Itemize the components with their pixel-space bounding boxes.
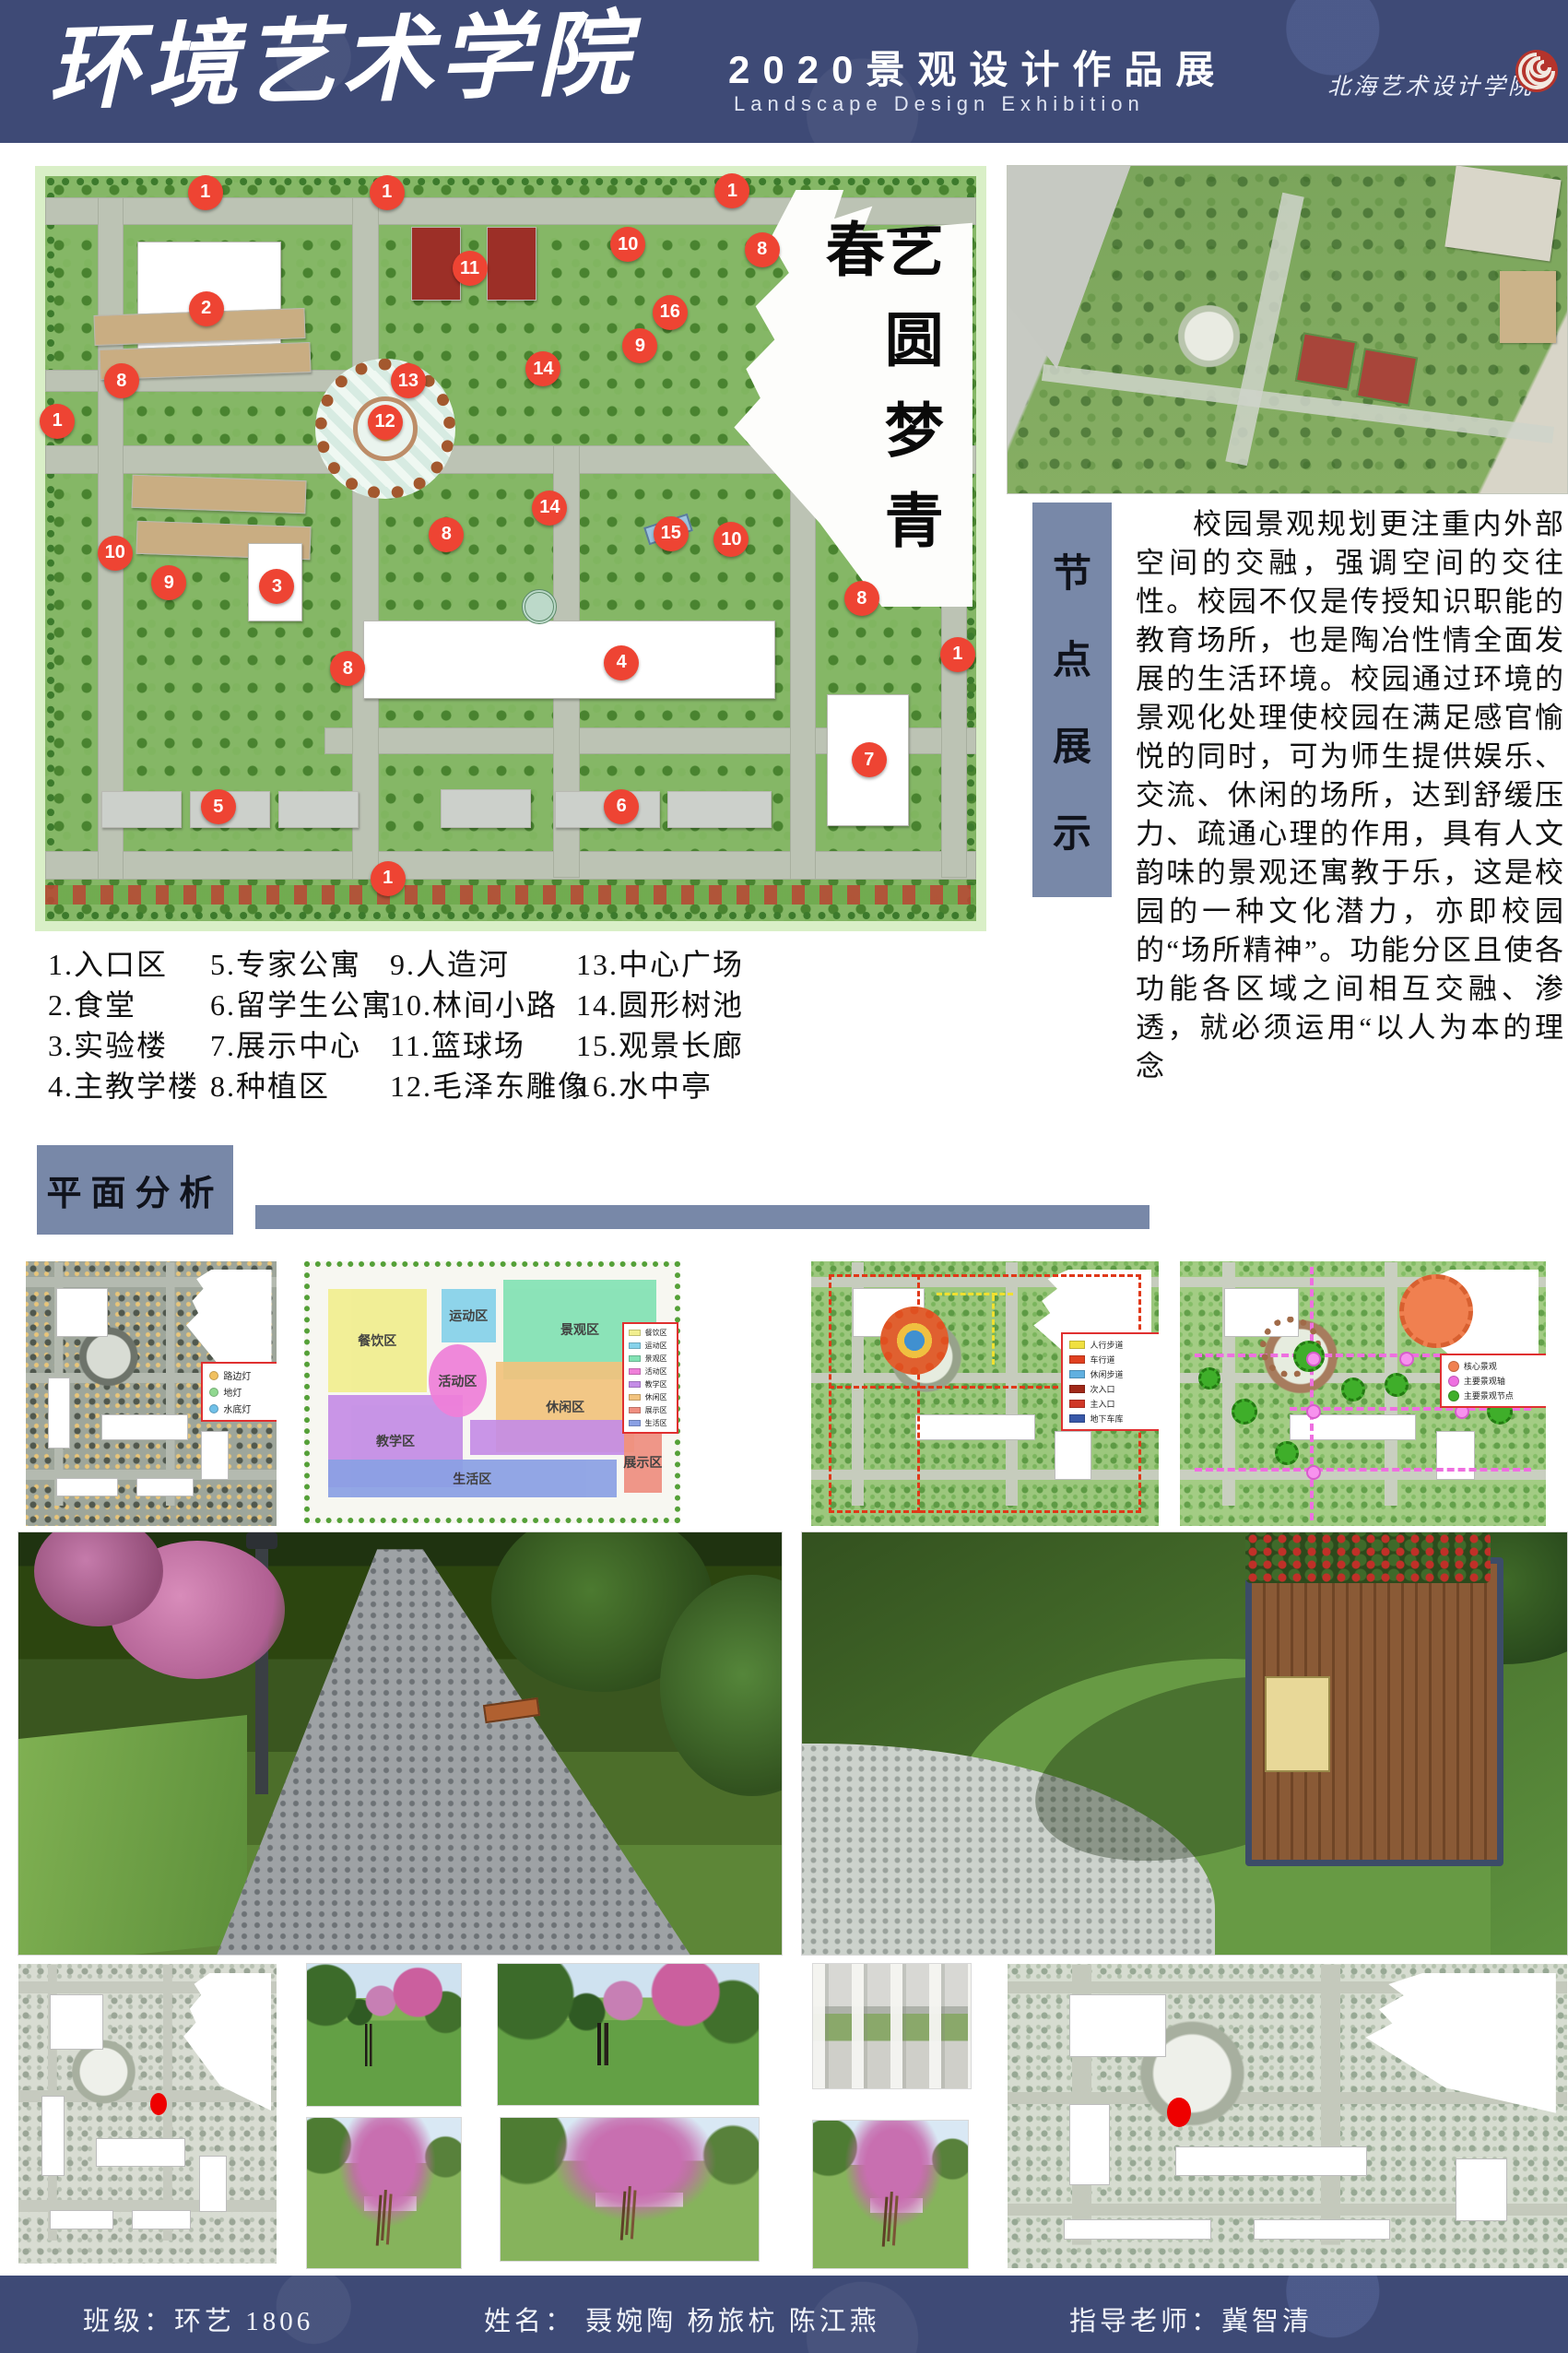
legend-label: 主入口 [1090, 1398, 1114, 1410]
plan-marker-number: 16 [660, 302, 680, 323]
legend-label: 人行步道 [1090, 1339, 1123, 1351]
building-footprint [201, 1431, 228, 1481]
legend-entry: 10.林间小路 [390, 985, 589, 1025]
school-logo-text: 北海艺术设计学院 [1327, 68, 1534, 101]
legend-label: 休闲区 [645, 1392, 667, 1402]
plan-marker-number: 4 [617, 652, 627, 673]
zone-legend: 餐饮区 运动区 景观区 活动区 [622, 1322, 679, 1434]
aerial-court [1356, 349, 1418, 407]
render-planter-flowers [1245, 1532, 1491, 1583]
legend-row: 主要景观节点 [1448, 1389, 1543, 1401]
legend-row: 生活区 [629, 1418, 673, 1428]
aerial-building [1444, 166, 1562, 262]
plan-marker: 3 [259, 569, 294, 604]
teacher-label: 指导老师：冀智清 [1069, 2300, 1313, 2338]
function-zone: 活动区 [429, 1344, 487, 1417]
node-photo-blossom [501, 2118, 759, 2261]
plan-marker: 16 [653, 295, 688, 330]
legend-label: 活动区 [645, 1366, 667, 1377]
aerial-building [1008, 166, 1232, 369]
node-photo-corridor [813, 1964, 971, 2088]
render-pathway-photo [18, 1532, 782, 1955]
building-footprint [1254, 2219, 1390, 2240]
legend-row: 展示区 [629, 1405, 673, 1415]
plan-marker: 1 [40, 404, 75, 439]
building-footprint [56, 1478, 118, 1496]
legend-label: 景观区 [645, 1354, 667, 1364]
plan-marker: 9 [622, 328, 657, 363]
plan-marker-number: 2 [201, 298, 211, 319]
node-label-char: 点 [1053, 629, 1091, 685]
legend-row: 主要景观轴 [1448, 1375, 1543, 1387]
node-display-label: 节 点 展 示 [1032, 503, 1112, 897]
legend-row: 休闲步道 [1069, 1368, 1152, 1380]
axis-intersection-dot [1399, 1352, 1414, 1366]
legend-swatch [1448, 1376, 1459, 1387]
legend-row: 地下车库 [1069, 1413, 1152, 1425]
render-planter-sign [1265, 1676, 1329, 1773]
legend-entry: 4.主教学楼 [48, 1066, 199, 1106]
function-zone: 展示区 [624, 1433, 663, 1493]
pedestrian-path-line [992, 1295, 995, 1365]
plan-marker: 7 [852, 742, 887, 777]
legend-entry: 16.水中亭 [576, 1066, 744, 1106]
node-photo-park [498, 1964, 759, 2105]
legend-label: 主要景观轴 [1464, 1375, 1505, 1387]
function-zone: 生活区 [328, 1460, 617, 1497]
plan-marker: 8 [429, 517, 464, 552]
landscape-node-symbol [1341, 1378, 1365, 1401]
section-divider-bar [255, 1205, 1149, 1229]
legend-label: 核心景观 [1464, 1360, 1497, 1372]
plan-marker: 11 [453, 251, 488, 286]
legend-row: 休闲区 [629, 1392, 673, 1402]
legend-label: 次入口 [1090, 1383, 1114, 1395]
legend-entry: 12.毛泽东雕像 [390, 1066, 589, 1106]
building-footprint [1456, 2158, 1508, 2221]
zone-label: 活动区 [438, 1372, 477, 1390]
class-label: 班级：环艺 1806 [83, 2300, 313, 2338]
plan-marker-number: 13 [398, 371, 419, 392]
plan-marker: 4 [604, 645, 639, 680]
legend-swatch [209, 1404, 218, 1413]
plan-marker-number: 10 [618, 234, 638, 255]
legend-label: 地下车库 [1090, 1413, 1123, 1425]
legend-row: 核心景观 [1448, 1360, 1543, 1372]
legend-label: 教学区 [645, 1379, 667, 1389]
plan-marker-number: 9 [635, 336, 645, 357]
legend-row: 运动区 [629, 1341, 673, 1351]
axis-legend: 核心景观 主要景观轴 主要景观节点 [1440, 1354, 1546, 1408]
plan-marker: 10 [610, 227, 645, 262]
plan-marker: 8 [104, 363, 139, 398]
plan-marker: 14 [525, 351, 560, 386]
plan-marker-number: 8 [757, 239, 767, 260]
building-footprint [1436, 1431, 1475, 1481]
plan-marker-number: 9 [164, 573, 174, 594]
landscape-node-symbol [1198, 1367, 1220, 1389]
building-footprint [199, 2156, 227, 2212]
plan-legend-col-2: 5.专家公寓6.留学生公寓7.展示中心8.种植区 [210, 944, 393, 1106]
legend-swatch [1069, 1385, 1085, 1393]
legend-label: 水底灯 [223, 1401, 251, 1415]
landscape-axis-line [1310, 1267, 1314, 1521]
plan-marker: 2 [189, 291, 224, 326]
landscape-axis-line [1195, 1468, 1531, 1472]
building-footprint [56, 1288, 108, 1338]
zone-label: 餐饮区 [358, 1331, 396, 1350]
legend-entry: 13.中心广场 [576, 944, 744, 985]
plan-marker-number: 14 [539, 497, 560, 518]
plan-marker-number: 8 [116, 371, 126, 392]
legend-swatch [1069, 1370, 1085, 1378]
legend-row: 景观区 [629, 1354, 673, 1364]
plan-marker: 1 [188, 175, 223, 210]
traffic-legend: 人行步道 车行道 休闲步道 次入口 [1061, 1332, 1159, 1431]
legend-entry: 7.展示中心 [210, 1025, 393, 1066]
axis-analysis-plan: 核心景观 主要景观轴 主要景观节点 [1180, 1261, 1546, 1526]
plan-marker: 15 [654, 516, 689, 551]
lighting-legend: 路边灯 地灯 水底灯 [201, 1362, 277, 1422]
building-footprint [1290, 1414, 1416, 1440]
legend-swatch [1069, 1355, 1085, 1364]
legend-row: 地灯 [209, 1385, 272, 1399]
legend-swatch [629, 1368, 641, 1375]
legend-row: 人行步道 [1069, 1339, 1152, 1351]
legend-entry: 5.专家公寓 [210, 944, 393, 985]
axis-intersection-dot [1306, 1352, 1321, 1366]
legend-entry: 11.篮球场 [390, 1025, 589, 1066]
plan-marker: 1 [371, 861, 406, 896]
location-marker-dot [150, 2093, 167, 2115]
building-footprint [136, 1478, 194, 1496]
plan-marker-number: 1 [383, 868, 393, 889]
poster-title: 环境艺术学院 [47, 7, 635, 115]
zoning-analysis-plan: 餐饮区 运动区 景观区 休闲区 教学区 [304, 1261, 680, 1523]
axis-intersection-dot [1306, 1404, 1321, 1419]
render-grass [18, 1715, 247, 1955]
plan-marker-number: 6 [617, 796, 627, 817]
aerial-building [1500, 271, 1556, 343]
pedestrian-path-line [937, 1293, 1013, 1295]
node-label-char: 示 [1053, 802, 1091, 858]
plan-marker-number: 11 [460, 258, 479, 279]
legend-row: 水底灯 [209, 1401, 272, 1415]
aerial-view-photo [1008, 166, 1567, 493]
plan-marker-number: 10 [105, 542, 125, 563]
plan-marker: 1 [714, 173, 749, 208]
landscape-node-symbol [1275, 1441, 1299, 1465]
building-footprint [1069, 2104, 1110, 2185]
legend-swatch [629, 1381, 641, 1388]
building-footprint [101, 1414, 188, 1440]
zone-label: 展示区 [623, 1453, 662, 1472]
plan-legend-col-4: 13.中心广场14.圆形树池15.观景长廊16.水中亭 [576, 944, 744, 1106]
node-photo-blossom [813, 2121, 968, 2268]
legend-entry: 3.实验楼 [48, 1025, 199, 1066]
plan-marker-number: 3 [272, 576, 282, 597]
legend-row: 活动区 [629, 1366, 673, 1377]
school-logo-swirl-icon [1514, 48, 1560, 94]
legend-swatch [1069, 1400, 1085, 1408]
legend-row: 餐饮区 [629, 1328, 673, 1338]
legend-row: 教学区 [629, 1379, 673, 1389]
legend-row: 主入口 [1069, 1398, 1152, 1410]
legend-label: 路边灯 [223, 1368, 251, 1382]
legend-label: 主要景观节点 [1464, 1389, 1514, 1401]
plan-marker: 10 [98, 536, 133, 571]
legend-entry: 1.入口区 [48, 944, 199, 985]
render-planter-photo [802, 1532, 1567, 1955]
plan-marker: 8 [330, 651, 365, 686]
building-footprint [50, 2210, 113, 2230]
plan-marker-number: 1 [200, 182, 210, 203]
legend-swatch [629, 1407, 641, 1413]
aerial-court [1294, 332, 1356, 390]
traffic-analysis-plan: 人行步道 车行道 休闲步道 次入口 [811, 1261, 1159, 1526]
plan-markers: 1 1 1 1 1 1 [45, 176, 976, 921]
locator-plan-right [1008, 1964, 1567, 2268]
plan-marker-number: 8 [442, 524, 452, 545]
lighting-analysis-plan: 路边灯 地灯 水底灯 [26, 1261, 277, 1526]
legend-label: 地灯 [223, 1385, 242, 1399]
legend-label: 生活区 [645, 1418, 667, 1428]
legend-label: 车行道 [1090, 1354, 1114, 1366]
plan-marker: 1 [370, 175, 405, 210]
legend-swatch [1448, 1361, 1459, 1372]
plan-marker: 12 [368, 405, 403, 440]
header-band: 环境艺术学院 2020景观设计作品展 Landscape Design Exhi… [0, 0, 1568, 143]
building-footprint [1365, 1973, 1555, 2113]
core-landscape-symbol [1399, 1274, 1473, 1348]
legend-label: 餐饮区 [645, 1328, 667, 1338]
legend-row: 车行道 [1069, 1354, 1152, 1366]
footer-band: 班级：环艺 1806 姓名： 聂婉陶 杨旅杭 陈江燕 指导老师：冀智清 [0, 2276, 1568, 2353]
building-footprint [48, 1378, 70, 1448]
legend-swatch [1069, 1341, 1085, 1349]
legend-swatch [629, 1420, 641, 1426]
legend-entry: 2.食堂 [48, 985, 199, 1025]
building-footprint [183, 1973, 271, 2111]
plan-marker: 8 [844, 581, 879, 616]
node-label-char: 节 [1053, 542, 1091, 598]
plan-marker: 8 [745, 232, 780, 267]
legend-swatch [1448, 1390, 1459, 1401]
legend-swatch [209, 1371, 218, 1380]
legend-entry: 8.种植区 [210, 1066, 393, 1106]
plan-marker: 6 [604, 789, 639, 824]
plan-marker: 13 [391, 363, 426, 398]
legend-label: 休闲步道 [1090, 1368, 1123, 1380]
master-plan: 艺圆梦青春 1 1 1 1 [35, 166, 986, 931]
plan-marker: 9 [151, 565, 186, 600]
plan-marker-number: 15 [661, 523, 681, 544]
legend-swatch [629, 1355, 641, 1362]
building-footprint [132, 2210, 191, 2230]
plan-marker-number: 1 [53, 410, 63, 432]
building-footprint [1064, 2219, 1211, 2240]
plan-analysis-label: 平面分析 [37, 1145, 233, 1235]
plan-marker-number: 8 [856, 588, 867, 609]
legend-entry: 14.圆形树池 [576, 985, 744, 1025]
zone-label: 休闲区 [546, 1398, 584, 1416]
locator-plan-left [18, 1964, 277, 2264]
node-label-char: 展 [1053, 715, 1091, 772]
legend-entry: 15.观景长廊 [576, 1025, 744, 1066]
plan-analysis-label-text: 平面分析 [46, 1165, 223, 1215]
location-marker-dot [1167, 2098, 1191, 2127]
zone-label: 景观区 [560, 1320, 599, 1339]
zones: 餐饮区 运动区 景观区 休闲区 教学区 [310, 1267, 675, 1518]
aerial-road [1225, 193, 1304, 467]
building-footprint [50, 1994, 103, 2051]
student-names: 姓名： 聂婉陶 杨旅杭 陈江燕 [484, 2300, 880, 2338]
plan-marker-number: 5 [213, 797, 223, 818]
node-photo-park [307, 1964, 461, 2106]
legend-swatch [629, 1342, 641, 1349]
poster-subtitle-en: Landscape Design Exhibition [734, 92, 1145, 116]
plan-legend-col-3: 9.人造河10.林间小路11.篮球场12.毛泽东雕像 [390, 944, 589, 1106]
legend-swatch [1069, 1414, 1085, 1423]
legend-label: 展示区 [645, 1405, 667, 1415]
axis-intersection-dot [1306, 1465, 1321, 1480]
landscape-node-symbol [1232, 1399, 1257, 1425]
legend-swatch [209, 1388, 218, 1397]
legend-entry: 9.人造河 [390, 944, 589, 985]
plan-marker-number: 8 [343, 658, 353, 680]
legend-row: 次入口 [1069, 1383, 1152, 1395]
plan-marker-number: 1 [382, 182, 392, 203]
plan-marker: 10 [713, 522, 749, 557]
landscape-axis-line [1195, 1354, 1473, 1357]
plan-marker-number: 1 [952, 644, 962, 665]
function-zone: 运动区 [442, 1289, 496, 1342]
building-footprint [1175, 2146, 1367, 2176]
node-photo-blossom [307, 2118, 461, 2268]
legend-entry: 6.留学生公寓 [210, 985, 393, 1025]
legend-swatch [629, 1330, 641, 1336]
function-zone: 餐饮区 [328, 1289, 427, 1392]
legend-row: 路边灯 [209, 1368, 272, 1382]
plan-marker: 14 [532, 491, 567, 526]
plan-marker: 1 [940, 637, 975, 672]
intro-paragraph: 校园景观规划更注重内外部空间的交融，强调空间的交往性。校园不仅是传授知识职能的教… [1136, 505, 1565, 1195]
building-footprint [41, 2096, 64, 2176]
legend-label: 运动区 [645, 1341, 667, 1351]
central-node-symbol [880, 1307, 949, 1375]
function-zone [470, 1420, 623, 1455]
legend-swatch [629, 1394, 641, 1401]
landscape-node-symbol [1385, 1373, 1409, 1397]
plan-marker-number: 12 [375, 411, 395, 432]
plan-marker-number: 10 [721, 529, 741, 550]
plan-marker-number: 1 [727, 181, 737, 202]
building-footprint [96, 2138, 185, 2167]
plan-marker-number: 14 [533, 359, 553, 380]
plan-legend-col-1: 1.入口区2.食堂3.实验楼4.主教学楼 [48, 944, 199, 1106]
plan-marker: 5 [201, 789, 236, 824]
poster-subtitle-cn: 2020景观设计作品展 [728, 39, 1227, 95]
zone-label: 运动区 [449, 1307, 488, 1325]
building-footprint [1069, 1994, 1166, 2057]
zone-label: 教学区 [376, 1432, 415, 1450]
plan-marker-number: 7 [864, 750, 874, 771]
render-lamp-cap [246, 1532, 277, 1549]
exhibition-poster: 环境艺术学院 2020景观设计作品展 Landscape Design Exhi… [0, 0, 1568, 2353]
zone-label: 生活区 [453, 1470, 491, 1488]
